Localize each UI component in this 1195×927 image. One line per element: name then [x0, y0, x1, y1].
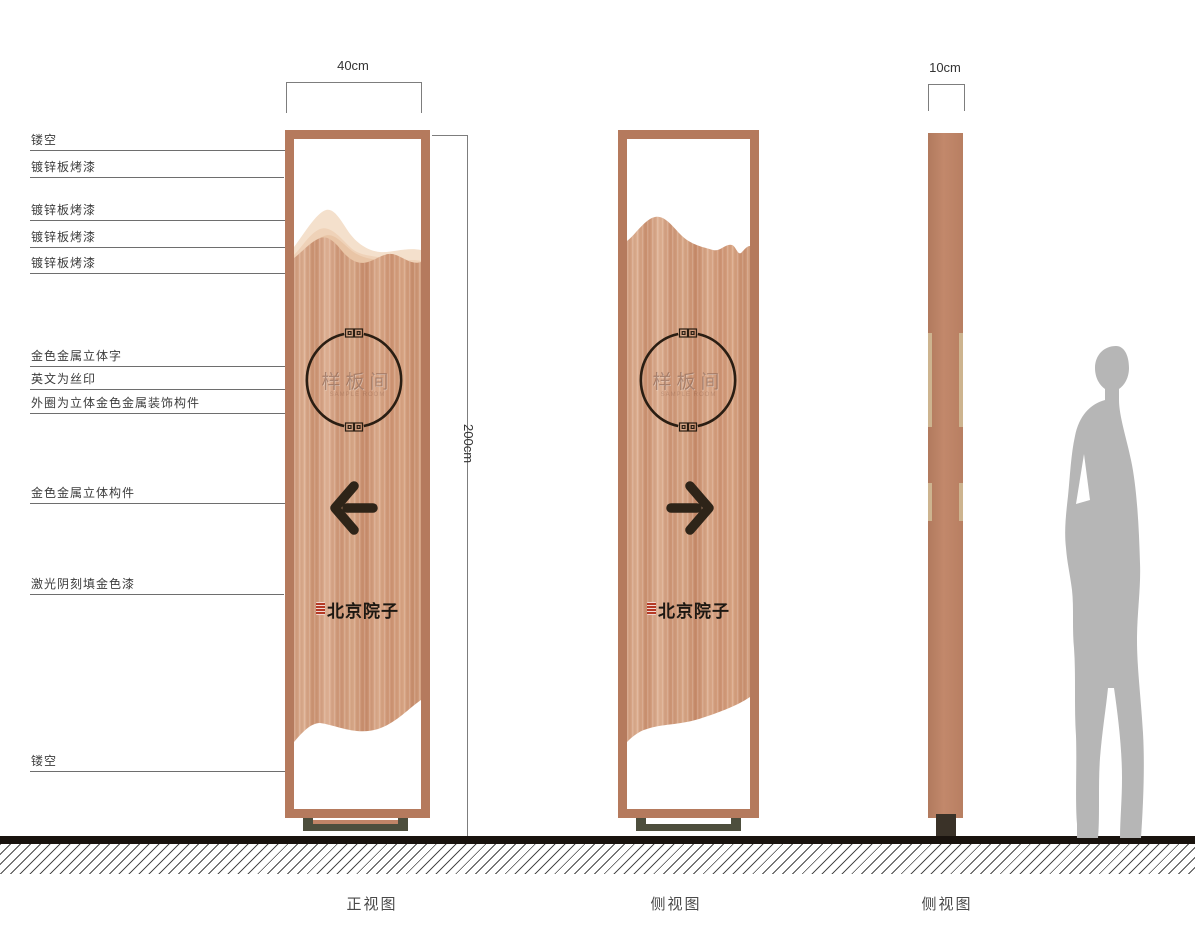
callout-label: 外圈为立体金色金属装饰构件: [31, 394, 200, 411]
callout-galvanized-1: 镀锌板烤漆: [30, 160, 284, 178]
circle-text: 样板间: [294, 367, 421, 394]
dim-side-width-bracket: [928, 84, 965, 111]
dim-side-width: 10cm: [929, 60, 961, 75]
callout-hollow-top: 镂空: [30, 133, 306, 151]
copper-panel-texture: [627, 217, 750, 742]
ground-hatch: [0, 844, 1195, 874]
seal-stamp-icon: [647, 602, 656, 615]
ground-line: [0, 836, 1195, 844]
callout-label: 镂空: [31, 131, 57, 148]
brand-logo: 北京院子: [627, 597, 750, 622]
dim-height-tick: [432, 135, 467, 136]
dim-front-width: 40cm: [337, 58, 369, 73]
callout-label: 激光阴刻填金色漆: [31, 575, 135, 592]
seal-stamp-icon: [316, 602, 325, 615]
callout-galvanized-2: 镀锌板烤漆: [30, 203, 297, 221]
callout-label: 金色金属立体构件: [31, 484, 135, 501]
sign-back-graphics: [627, 139, 750, 809]
circle-subtext: SAMPLE ROOM: [294, 392, 421, 398]
view-label-front: 正视图: [346, 893, 397, 914]
human-silhouette: [1040, 346, 1170, 838]
callout-label: 镀锌板烤漆: [31, 201, 96, 218]
callout-laser-engraving: 激光阴刻填金色漆: [30, 577, 284, 595]
brand-text: 北京院子: [658, 602, 730, 621]
dim-front-width-bracket: [286, 82, 422, 113]
brand-text: 北京院子: [327, 602, 399, 621]
sign-back-base: [636, 818, 741, 831]
side-arrow-strip: [928, 483, 932, 521]
brand-logo: 北京院子: [294, 597, 421, 622]
callout-label: 镀锌板烤漆: [31, 228, 96, 245]
copper-panel-texture: [294, 237, 421, 742]
view-label-side-1: 侧视图: [650, 893, 701, 914]
dim-height: 200cm: [461, 424, 476, 463]
callout-gold-letters: 金色金属立体字: [30, 349, 323, 367]
sign-side-profile: [928, 133, 963, 818]
callout-label: 英文为丝印: [31, 370, 96, 387]
signage-spec-drawing: 镂空 镀锌板烤漆 镀锌板烤漆 镀锌板烤漆 镀锌板烤漆 金色金属立体字 英文为丝印…: [0, 0, 1195, 927]
callout-galvanized-4: 镀锌板烤漆: [30, 256, 293, 274]
callout-hollow-bottom: 镂空: [30, 754, 303, 772]
sign-front-base: [303, 818, 408, 831]
callout-galvanized-3: 镀锌板烤漆: [30, 230, 289, 248]
dim-height-line: [467, 135, 468, 836]
callout-label: 镂空: [31, 752, 57, 769]
sign-front-view: 样板间 SAMPLE ROOM 北京院子: [285, 130, 430, 818]
sign-side-foot: [936, 814, 956, 838]
callout-label: 镀锌板烤漆: [31, 254, 96, 271]
circle-text: 样板间: [627, 367, 750, 394]
sign-front-graphics: [294, 139, 421, 809]
callout-label: 金色金属立体字: [31, 347, 122, 364]
callout-gold-component: 金色金属立体构件: [30, 486, 308, 504]
callout-ring-ornament: 外圈为立体金色金属装饰构件: [30, 396, 315, 414]
sign-back-view: 样板间 SAMPLE ROOM 北京院子: [618, 130, 759, 818]
circle-subtext: SAMPLE ROOM: [627, 392, 750, 398]
callout-label: 镀锌板烤漆: [31, 158, 96, 175]
side-arrow-strip: [959, 483, 963, 521]
callout-silkscreen: 英文为丝印: [30, 372, 327, 390]
view-label-side-2: 侧视图: [921, 893, 972, 914]
side-ornament-strip: [959, 333, 963, 427]
side-ornament-strip: [928, 333, 932, 427]
